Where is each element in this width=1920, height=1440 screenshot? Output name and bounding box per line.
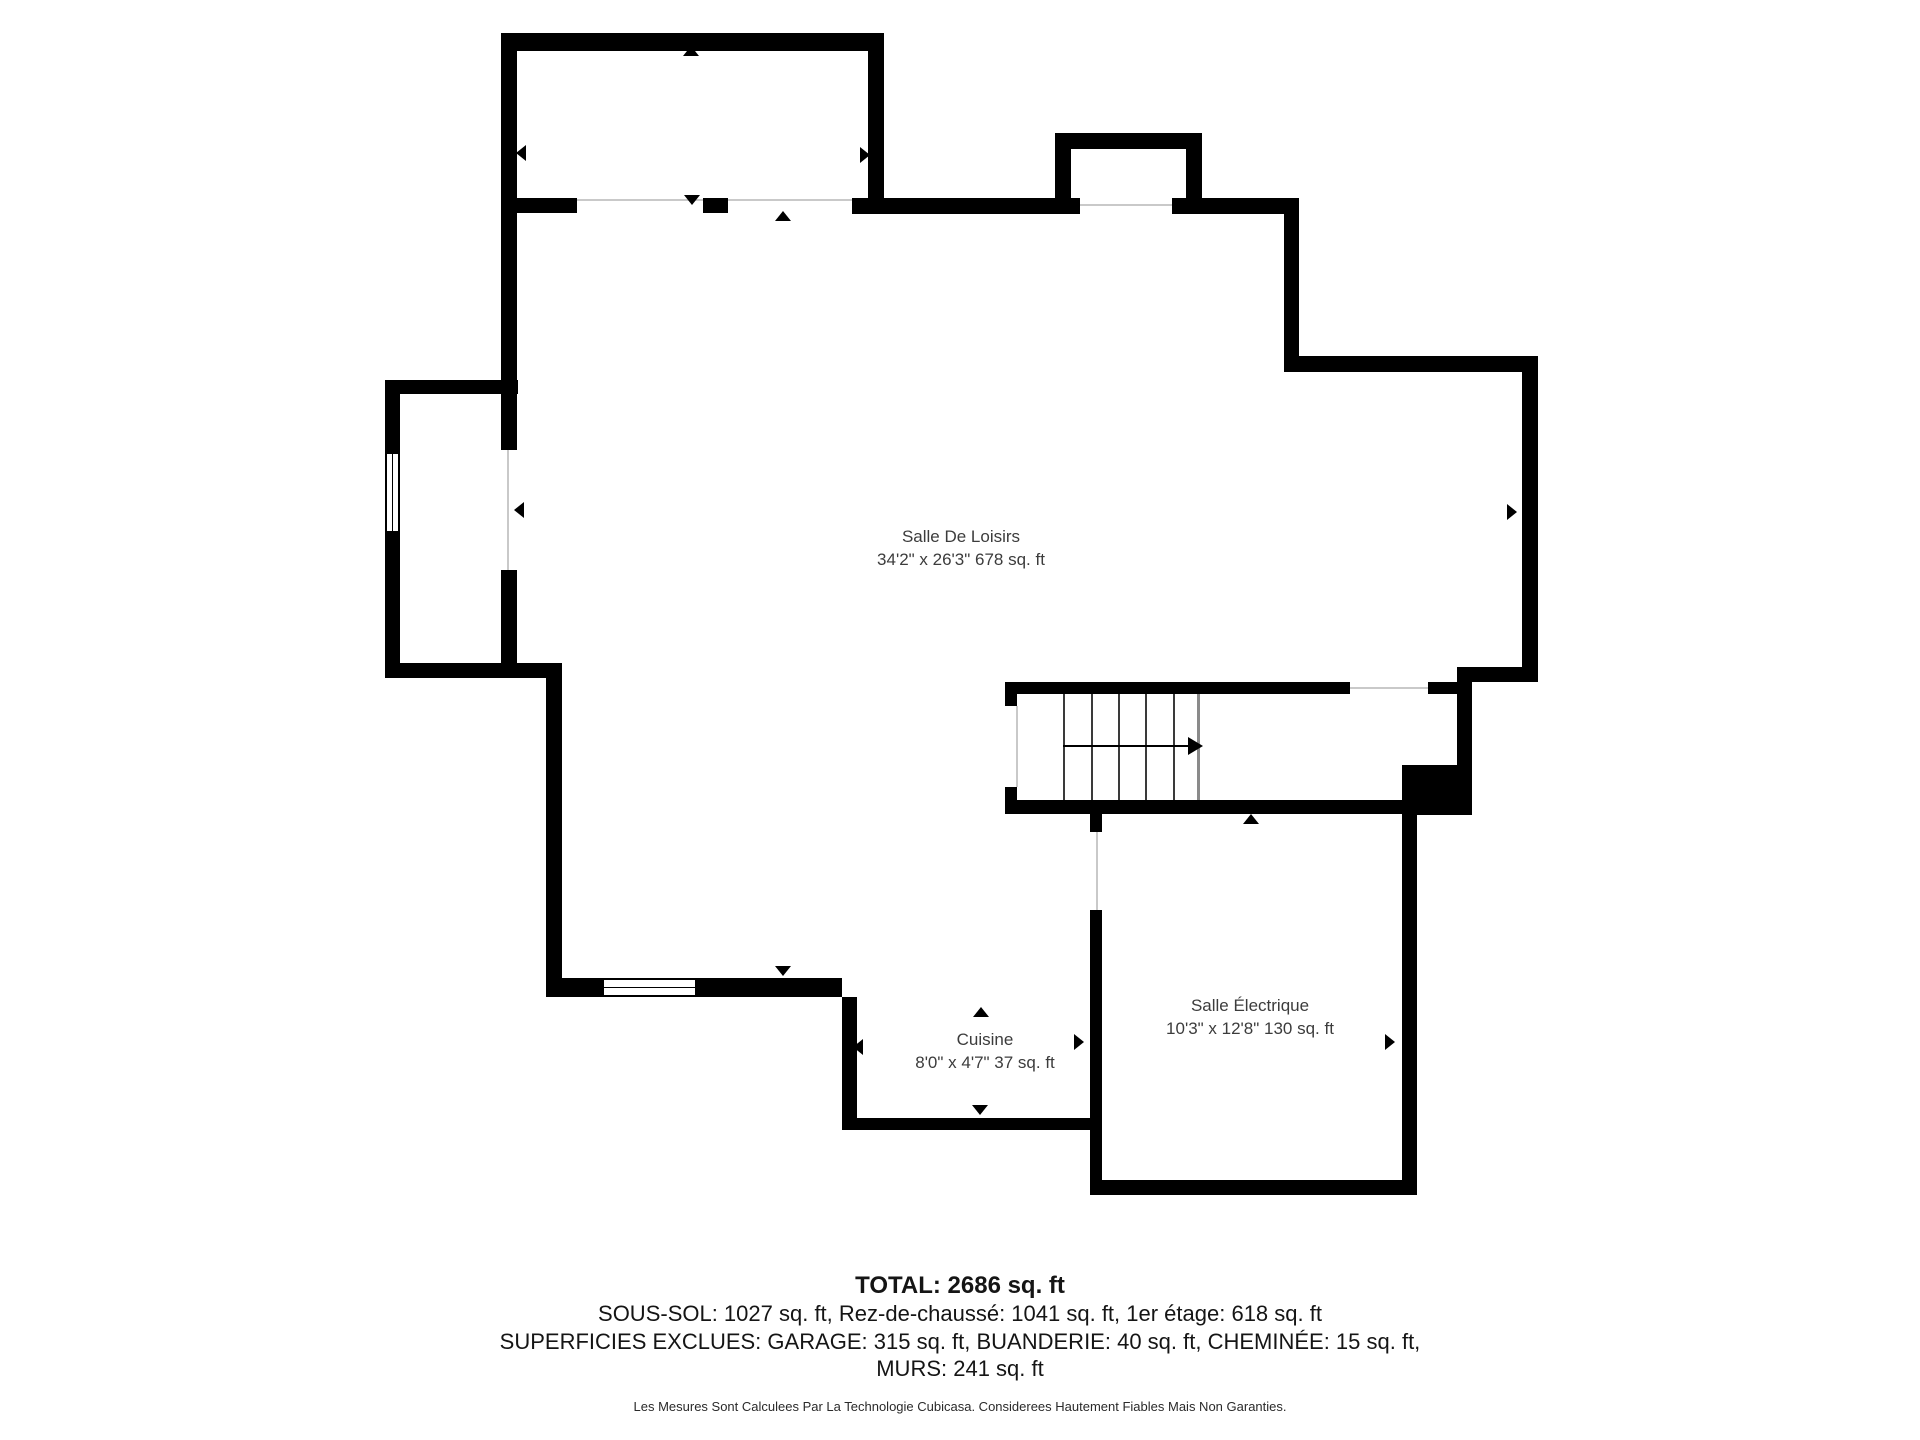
wall <box>1055 133 1071 214</box>
wall <box>1428 682 1457 694</box>
wall <box>852 198 1080 214</box>
excluded-areas-text: SUPERFICIES EXCLUES: GARAGE: 315 sq. ft,… <box>0 1329 1920 1355</box>
window-center-line <box>604 987 695 988</box>
stair-tread <box>1173 694 1175 800</box>
door-direction-right-icon <box>1507 504 1517 520</box>
door-opening-line <box>1350 687 1428 689</box>
wall <box>1090 814 1102 832</box>
room-dimensions: 8'0" x 4'7" 37 sq. ft <box>915 1051 1055 1074</box>
door-opening-line <box>1080 204 1172 206</box>
door-direction-left-icon <box>853 1039 863 1055</box>
wall <box>1005 800 1404 814</box>
door-direction-left-icon <box>516 145 526 161</box>
wall <box>842 1118 1090 1130</box>
stair-tread <box>1063 694 1065 800</box>
door-direction-right-icon <box>1385 1034 1395 1050</box>
floor-areas-text: SOUS-SOL: 1027 sq. ft, Rez-de-chaussé: 1… <box>0 1301 1920 1327</box>
wall <box>1055 133 1202 149</box>
wall <box>1090 1180 1417 1195</box>
wall <box>385 380 518 394</box>
door-direction-up-icon <box>973 1007 989 1017</box>
floor-plan-drawing: Salle De Loisirs34'2" x 26'3" 678 sq. ft… <box>0 0 1920 1440</box>
door-direction-up-icon <box>775 211 791 221</box>
wall <box>703 198 728 213</box>
door-opening-line <box>1096 832 1098 910</box>
stair-direction-arrowhead-icon <box>1188 737 1203 755</box>
wall <box>1090 910 1102 1195</box>
room-name: Cuisine <box>915 1028 1055 1051</box>
wall <box>385 533 400 678</box>
door-direction-down-icon <box>972 1105 988 1115</box>
stair-tread <box>1145 694 1147 800</box>
wall <box>385 663 562 678</box>
wall <box>1284 198 1299 372</box>
floor-plan-page: Salle De Loisirs34'2" x 26'3" 678 sq. ft… <box>0 0 1920 1440</box>
stair-tread <box>1118 694 1120 800</box>
room-dimensions: 10'3" x 12'8" 130 sq. ft <box>1166 1017 1334 1040</box>
wall <box>1005 682 1350 694</box>
wall <box>1284 356 1538 372</box>
wall <box>1005 682 1017 706</box>
stair-tread <box>1091 694 1093 800</box>
door-direction-up-icon <box>683 46 699 56</box>
wall <box>517 198 577 213</box>
room-dimensions: 34'2" x 26'3" 678 sq. ft <box>877 548 1045 571</box>
wall <box>868 33 884 213</box>
door-direction-left-icon <box>514 502 524 518</box>
door-opening-line <box>1016 706 1018 787</box>
stair-direction-arrow <box>1063 745 1188 747</box>
door-direction-right-icon <box>1074 1034 1084 1050</box>
door-opening-line <box>728 199 852 201</box>
door-opening-line <box>507 450 509 570</box>
wall <box>385 380 400 452</box>
wall <box>1402 765 1472 815</box>
door-direction-right-icon <box>860 147 870 163</box>
wall <box>501 570 517 678</box>
wall <box>1186 133 1202 214</box>
window-center-line <box>392 454 393 531</box>
wall <box>546 678 562 978</box>
room-name: Salle Électrique <box>1166 994 1334 1017</box>
room-name: Salle De Loisirs <box>877 525 1045 548</box>
wall <box>1522 356 1538 682</box>
wall <box>1402 814 1417 1195</box>
door-direction-down-icon <box>775 966 791 976</box>
door-direction-down-icon <box>684 195 700 205</box>
wall <box>1457 667 1472 770</box>
walls-area-text: MURS: 241 sq. ft <box>0 1356 1920 1382</box>
wall <box>842 997 857 1130</box>
wall <box>697 978 842 997</box>
room-label-salle-electrique: Salle Électrique10'3" x 12'8" 130 sq. ft <box>1166 994 1334 1040</box>
disclaimer-text: Les Mesures Sont Calculees Par La Techno… <box>0 1399 1920 1414</box>
room-label-salle-de-loisirs: Salle De Loisirs34'2" x 26'3" 678 sq. ft <box>877 525 1045 571</box>
total-area-text: TOTAL: 2686 sq. ft <box>0 1272 1920 1300</box>
room-label-cuisine: Cuisine8'0" x 4'7" 37 sq. ft <box>915 1028 1055 1074</box>
door-direction-up-icon <box>1243 814 1259 824</box>
wall <box>546 978 602 997</box>
